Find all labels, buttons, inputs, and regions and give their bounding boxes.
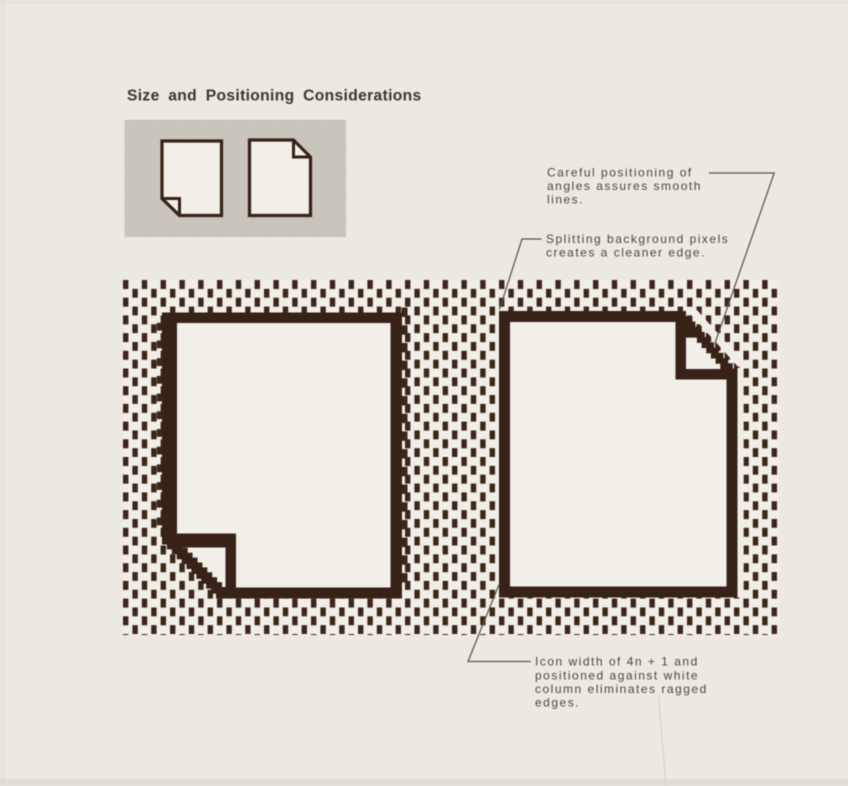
- svg-text:column eliminates ragged: column eliminates ragged: [535, 682, 708, 696]
- svg-text:creates a cleaner edge.: creates a cleaner edge.: [546, 245, 706, 259]
- svg-text:positioned against white: positioned against white: [535, 668, 699, 682]
- svg-text:Splitting background pixels: Splitting background pixels: [546, 232, 729, 246]
- svg-text:Careful positioning of: Careful positioning of: [547, 166, 693, 180]
- svg-text:Size and Positioning Considera: Size and Positioning Considerations: [127, 88, 422, 105]
- svg-text:lines.: lines.: [547, 193, 584, 207]
- svg-text:edges.: edges.: [535, 696, 580, 710]
- svg-text:Icon width of 4n + 1 and: Icon width of 4n + 1 and: [535, 655, 699, 669]
- svg-text:angles assures smooth: angles assures smooth: [547, 179, 702, 193]
